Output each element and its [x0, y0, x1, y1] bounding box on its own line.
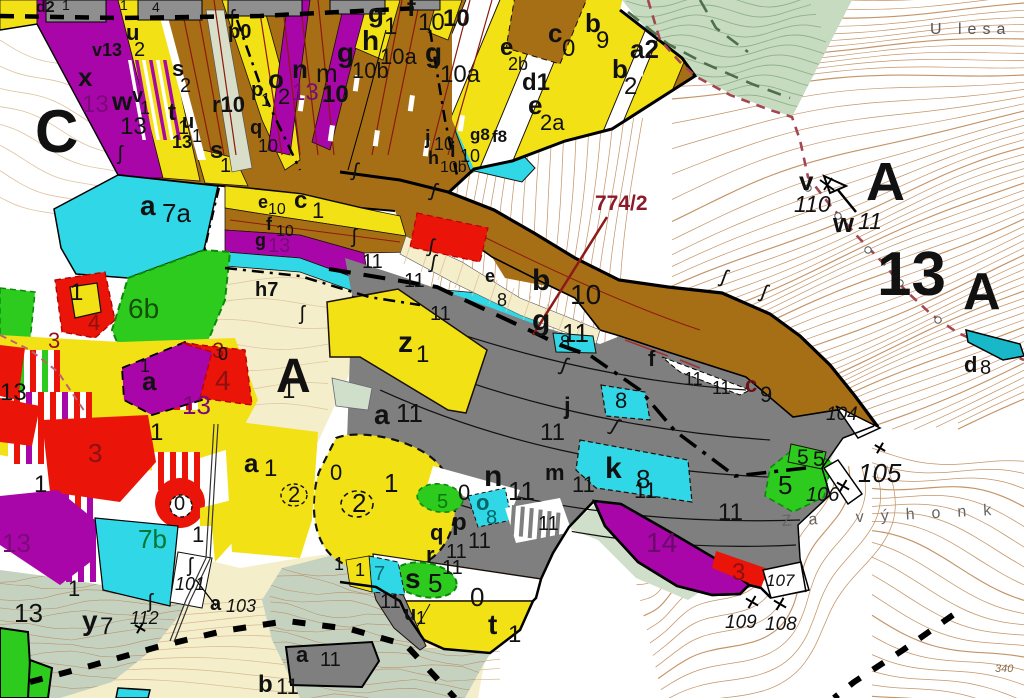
svg-text:8: 8 — [497, 290, 507, 310]
svg-text:4: 4 — [88, 310, 100, 335]
svg-text:y: y — [82, 605, 98, 636]
svg-text:0: 0 — [562, 35, 575, 62]
svg-text:13: 13 — [82, 91, 109, 118]
svg-text:1: 1 — [70, 279, 83, 306]
svg-text:0: 0 — [174, 493, 185, 515]
svg-text:104: 104 — [826, 404, 858, 425]
svg-text:14: 14 — [646, 527, 677, 558]
svg-text:a: a — [296, 642, 309, 667]
svg-text:d2: d2 — [36, 0, 55, 16]
svg-text:11: 11 — [508, 476, 535, 506]
svg-text:a: a — [244, 448, 259, 478]
svg-text:11: 11 — [634, 478, 657, 503]
svg-text:f: f — [266, 214, 273, 234]
svg-text:1: 1 — [508, 621, 521, 648]
svg-text:0: 0 — [458, 480, 470, 505]
svg-text:1: 1 — [140, 98, 150, 118]
svg-text:b: b — [258, 671, 273, 698]
svg-text:1: 1 — [416, 608, 426, 628]
svg-text:10a: 10a — [440, 61, 481, 88]
svg-text:d: d — [964, 352, 977, 377]
svg-text:1: 1 — [312, 198, 324, 223]
svg-text:w: w — [111, 86, 133, 116]
svg-text:2a: 2a — [540, 110, 565, 135]
svg-text:8: 8 — [486, 507, 497, 529]
svg-text:j: j — [563, 393, 571, 420]
svg-text:7a: 7a — [162, 198, 191, 228]
svg-text:1: 1 — [140, 356, 150, 376]
svg-text:v13: v13 — [92, 40, 122, 60]
svg-text:6b: 6b — [128, 293, 159, 324]
svg-text:h: h — [428, 148, 439, 168]
svg-text:A: A — [866, 152, 905, 212]
svg-text:101: 101 — [175, 574, 205, 594]
svg-text:1: 1 — [150, 419, 163, 446]
svg-text:774/2: 774/2 — [595, 192, 648, 215]
svg-text:a: a — [140, 190, 156, 221]
svg-text:11: 11 — [320, 649, 341, 671]
svg-text:s: s — [405, 563, 421, 594]
svg-text:11: 11 — [396, 398, 423, 428]
svg-text:2: 2 — [134, 39, 145, 61]
svg-text:g: g — [255, 230, 266, 250]
svg-text:i: i — [450, 139, 456, 161]
svg-text:10: 10 — [258, 136, 278, 156]
svg-text:h: h — [362, 25, 379, 56]
svg-text:b: b — [532, 264, 550, 297]
svg-text:a: a — [374, 399, 390, 430]
svg-text:10: 10 — [570, 279, 601, 310]
svg-text:1: 1 — [68, 576, 80, 601]
svg-text:13: 13 — [292, 79, 319, 106]
svg-text:j: j — [424, 127, 431, 149]
svg-text:1: 1 — [282, 377, 295, 404]
svg-text:11: 11 — [276, 674, 299, 698]
svg-text:11: 11 — [442, 557, 463, 579]
svg-text:103: 103 — [226, 596, 256, 616]
svg-text:1: 1 — [334, 554, 344, 574]
svg-text:A: A — [963, 263, 1001, 321]
svg-text:5: 5 — [428, 568, 442, 598]
svg-text:3: 3 — [48, 328, 60, 353]
svg-text:105: 105 — [858, 458, 902, 488]
svg-text:13: 13 — [2, 528, 31, 558]
svg-text:2b: 2b — [508, 54, 528, 74]
svg-text:1: 1 — [120, 0, 128, 13]
svg-text:U lesa: U lesa — [930, 21, 1011, 38]
svg-text:e: e — [258, 192, 268, 212]
svg-text:g: g — [368, 0, 384, 28]
svg-text:1: 1 — [384, 468, 398, 498]
svg-text:4: 4 — [215, 365, 231, 396]
svg-text:340: 340 — [995, 663, 1014, 675]
svg-text:13: 13 — [172, 132, 192, 152]
svg-text:11: 11 — [684, 369, 703, 389]
svg-text:10: 10 — [418, 9, 445, 36]
svg-text:a2: a2 — [630, 34, 659, 64]
svg-text:10a: 10a — [380, 44, 417, 69]
svg-text:0: 0 — [218, 344, 228, 364]
svg-text:p: p — [452, 509, 467, 536]
svg-text:w: w — [832, 208, 855, 238]
svg-text:1: 1 — [34, 471, 47, 498]
svg-text:5: 5 — [813, 448, 825, 471]
svg-text:1: 1 — [192, 522, 204, 547]
svg-text:t: t — [488, 609, 497, 640]
svg-text:10b: 10b — [440, 159, 467, 176]
svg-text:11: 11 — [572, 472, 595, 497]
svg-text:8: 8 — [980, 357, 991, 379]
svg-text:110: 110 — [794, 191, 831, 217]
svg-text:g: g — [532, 304, 550, 337]
svg-text:1: 1 — [261, 90, 271, 110]
svg-text:7b: 7b — [138, 524, 167, 554]
svg-text:a: a — [210, 593, 222, 615]
svg-text:13: 13 — [268, 235, 290, 257]
svg-text:t: t — [168, 99, 176, 126]
svg-text:13: 13 — [877, 240, 946, 309]
svg-text:107: 107 — [766, 571, 795, 590]
svg-text:k: k — [605, 452, 622, 485]
svg-text:1: 1 — [264, 455, 277, 482]
svg-text:11: 11 — [430, 303, 451, 325]
svg-text:3: 3 — [732, 559, 745, 586]
svg-text:11: 11 — [562, 318, 589, 348]
svg-text:h7: h7 — [255, 279, 278, 301]
svg-text:r10: r10 — [212, 92, 245, 117]
svg-text:5: 5 — [778, 470, 792, 500]
svg-text:1: 1 — [192, 126, 202, 146]
svg-text:11: 11 — [362, 251, 383, 273]
svg-text:108: 108 — [765, 614, 797, 635]
svg-text:r: r — [426, 542, 435, 567]
svg-text:n: n — [484, 460, 502, 493]
svg-text:m: m — [545, 460, 565, 485]
svg-text:11: 11 — [468, 528, 491, 553]
svg-text:0: 0 — [470, 582, 484, 612]
svg-text:9: 9 — [760, 382, 772, 407]
svg-text:10: 10 — [443, 5, 470, 32]
svg-text:7: 7 — [374, 563, 385, 585]
svg-text:2: 2 — [278, 84, 290, 109]
svg-text:112: 112 — [130, 608, 159, 628]
svg-text:e: e — [485, 266, 495, 286]
svg-text:11: 11 — [538, 513, 559, 535]
svg-text:f: f — [648, 346, 656, 371]
svg-text:109: 109 — [725, 612, 757, 633]
svg-text:9: 9 — [596, 27, 609, 54]
svg-text:1: 1 — [220, 155, 231, 177]
svg-text:c: c — [745, 372, 757, 397]
svg-text:5: 5 — [437, 491, 448, 513]
svg-text:1: 1 — [62, 0, 70, 13]
svg-text:5: 5 — [797, 446, 809, 469]
svg-text:106: 106 — [806, 484, 840, 506]
svg-text:u: u — [404, 603, 416, 625]
svg-text:11: 11 — [718, 499, 743, 526]
svg-text:1: 1 — [384, 13, 397, 40]
svg-text:1: 1 — [416, 341, 429, 368]
svg-text:2: 2 — [180, 75, 191, 97]
svg-text:1: 1 — [355, 560, 365, 580]
svg-text:7: 7 — [100, 613, 113, 640]
svg-text:f8: f8 — [492, 127, 507, 146]
svg-text:x: x — [78, 62, 93, 92]
svg-text:3: 3 — [88, 438, 102, 468]
svg-text:8: 8 — [615, 388, 627, 413]
svg-text:C: C — [35, 98, 78, 165]
svg-text:11: 11 — [540, 419, 565, 446]
svg-text:2: 2 — [624, 73, 637, 100]
svg-text:10: 10 — [322, 81, 349, 108]
svg-text:11: 11 — [380, 591, 401, 613]
svg-text:z: z — [398, 326, 413, 359]
svg-text:g8: g8 — [470, 125, 490, 144]
svg-text:c: c — [548, 18, 562, 48]
svg-text:c: c — [294, 187, 307, 214]
svg-text:11: 11 — [858, 208, 882, 234]
svg-text:11: 11 — [404, 270, 425, 292]
svg-text:4: 4 — [152, 0, 160, 15]
svg-text:13: 13 — [14, 598, 43, 628]
svg-text:13: 13 — [0, 379, 27, 406]
svg-text:11: 11 — [712, 378, 731, 398]
svg-text:2: 2 — [288, 482, 300, 507]
svg-text:0: 0 — [330, 460, 342, 485]
svg-text:f: f — [407, 0, 416, 22]
svg-text:13: 13 — [182, 390, 211, 420]
